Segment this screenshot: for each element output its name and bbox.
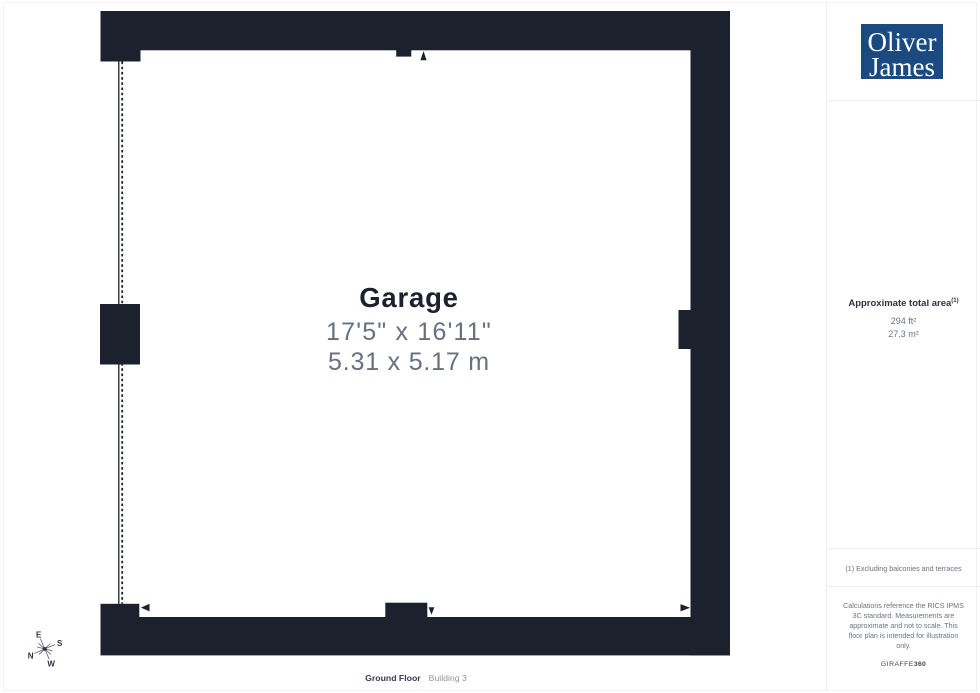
svg-text:N: N (28, 651, 34, 660)
svg-text:W: W (47, 660, 55, 669)
svg-text:E: E (36, 631, 42, 640)
svg-text:S: S (57, 639, 63, 648)
